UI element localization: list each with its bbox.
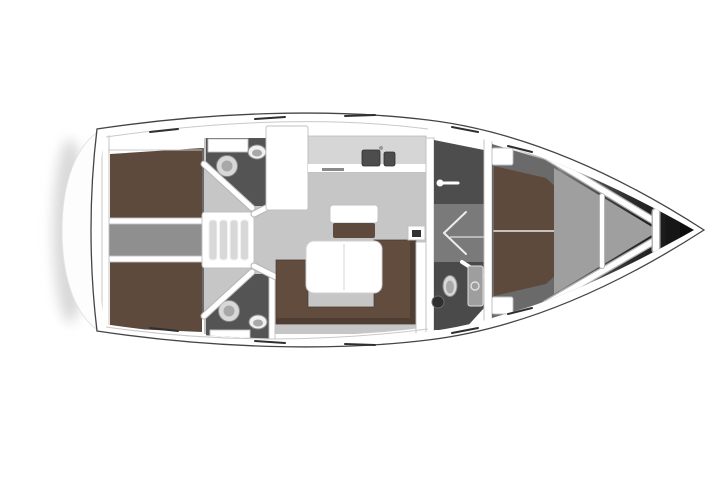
fwd-port-compartment-floor — [434, 140, 484, 204]
nav-instrument-screen — [412, 230, 421, 237]
chart-seat-base — [333, 223, 375, 238]
corridor-wall-starboard — [104, 256, 206, 262]
aft-port-berth — [110, 148, 202, 220]
deck-mark-bottom-3 — [345, 344, 375, 345]
fwd-cabin-shelf-port — [492, 148, 513, 165]
engine-corridor-floor — [104, 222, 206, 258]
aft-starboard-berth — [110, 262, 202, 332]
galley-faucet — [379, 146, 383, 150]
head-starboard-bulkhead — [269, 272, 275, 342]
salon-fwd-bulkhead — [426, 138, 434, 338]
fwd-cabin-bulkhead — [484, 138, 492, 338]
fwd-head-toilet-bowl — [446, 281, 454, 294]
head-port-toilet-bowl — [222, 161, 233, 172]
deck-mark-top-3 — [345, 115, 375, 116]
companionway-step-2 — [220, 220, 228, 260]
chart-seat-top — [330, 205, 378, 223]
fwd-passage-floor — [434, 204, 484, 262]
yacht-floorplan-canvas — [0, 0, 720, 480]
head-starboard-toilet-bowl — [224, 306, 235, 317]
nav-wall — [416, 242, 426, 334]
galley-stove-mark — [322, 168, 344, 171]
sofa-arm-shadow — [410, 240, 416, 324]
companionway-step-3 — [230, 220, 238, 260]
transom-inner-wall — [102, 130, 109, 332]
head-starboard-sink-basin — [253, 320, 263, 327]
door-handle-knob — [437, 180, 444, 187]
shower-tray — [468, 266, 483, 306]
galley-sink-large — [362, 150, 380, 166]
head-port-vanity — [208, 139, 248, 152]
fwd-cabin-shelf-starboard — [492, 297, 513, 314]
companionway-step-1 — [209, 220, 217, 260]
head-port-sink-basin — [252, 150, 262, 157]
companionway-step-4 — [241, 220, 249, 260]
yacht-floorplan-image — [0, 0, 720, 480]
corridor-wall-port — [104, 218, 206, 224]
galley-block — [266, 126, 308, 210]
fwd-head-hatch — [432, 296, 444, 308]
sofa-backrest-shadow — [276, 318, 416, 324]
galley-sink-small — [384, 152, 395, 166]
